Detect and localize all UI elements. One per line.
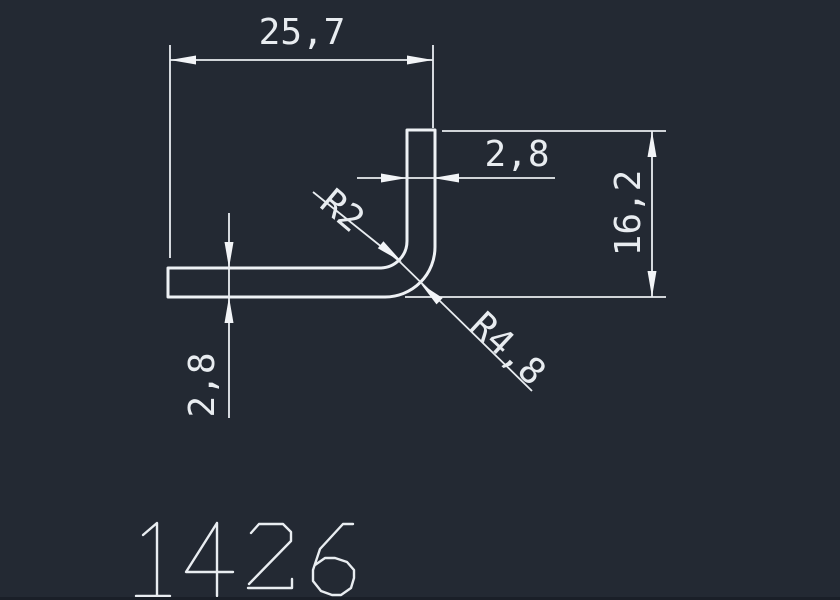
overall-height-label: 16,2 — [608, 170, 649, 257]
arrowhead-up-icon — [225, 297, 234, 323]
part-number-glyphs — [136, 523, 354, 596]
arrowhead-right-icon — [433, 174, 459, 183]
inner-radius-arrowhead-icon — [378, 241, 402, 262]
digit-6-glyph — [313, 524, 354, 595]
radius-leaders[interactable]: R2 R4,8 — [312, 181, 553, 393]
digit-2-glyph — [248, 524, 292, 588]
l-angle-profile-path[interactable] — [168, 130, 435, 297]
arrowhead-up-icon — [648, 131, 657, 157]
arrowhead-left-icon — [170, 56, 196, 65]
arrowhead-right-icon — [407, 56, 433, 65]
dim-vertical-leg-thickness[interactable]: 2,8 — [357, 134, 555, 183]
outer-radius-arrowhead-icon — [421, 284, 443, 304]
digit-1-glyph — [136, 523, 170, 596]
dim-overall-width[interactable]: 25,7 — [170, 12, 433, 258]
drawing-viewport: 25,7 2,8 16,2 2,8 — [0, 0, 840, 600]
dim-horizontal-leg-thickness[interactable]: 2,8 — [182, 213, 234, 418]
digit-4-glyph — [186, 523, 233, 596]
vertical-leg-thickness-label: 2,8 — [484, 134, 549, 175]
overall-width-label: 25,7 — [259, 12, 346, 53]
outer-radius-label: R4,8 — [462, 305, 553, 394]
arrowhead-down-icon — [225, 242, 234, 268]
arrowhead-left-icon — [381, 174, 407, 183]
profile-outline[interactable] — [168, 130, 435, 297]
arrowhead-down-icon — [648, 271, 657, 297]
horizontal-leg-thickness-label: 2,8 — [182, 352, 223, 417]
cad-drawing-canvas[interactable]: 1426 25,7 2,8 16,2 — [0, 0, 840, 600]
